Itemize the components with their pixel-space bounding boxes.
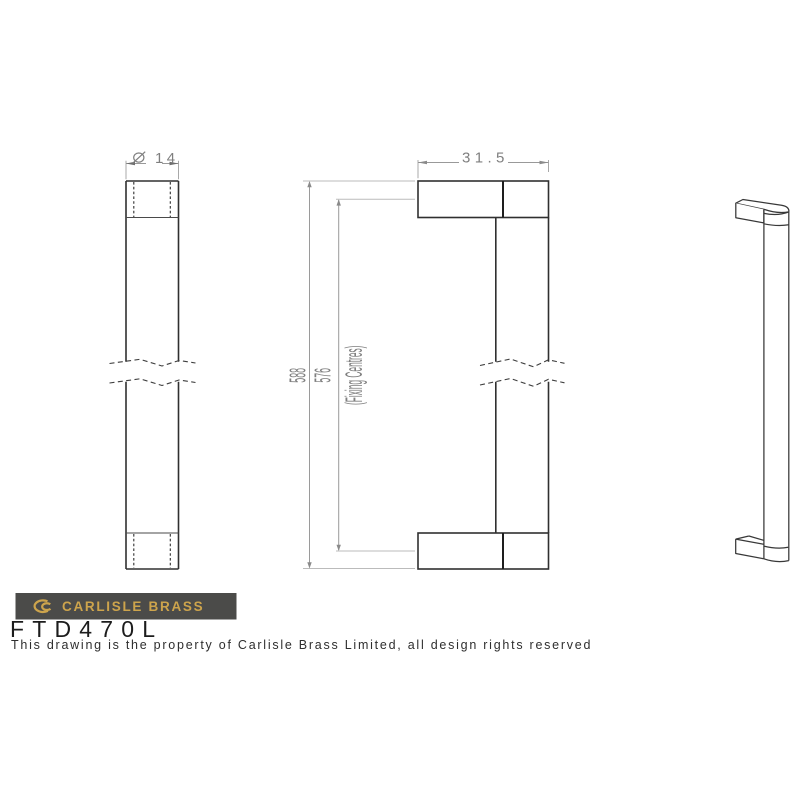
svg-text:14: 14 — [155, 150, 179, 167]
svg-text:576: 576 — [309, 368, 335, 383]
svg-text:588: 588 — [285, 368, 311, 383]
svg-text:(Fixing Centres): (Fixing Centres) — [341, 346, 368, 406]
svg-text:31.5: 31.5 — [462, 149, 509, 166]
